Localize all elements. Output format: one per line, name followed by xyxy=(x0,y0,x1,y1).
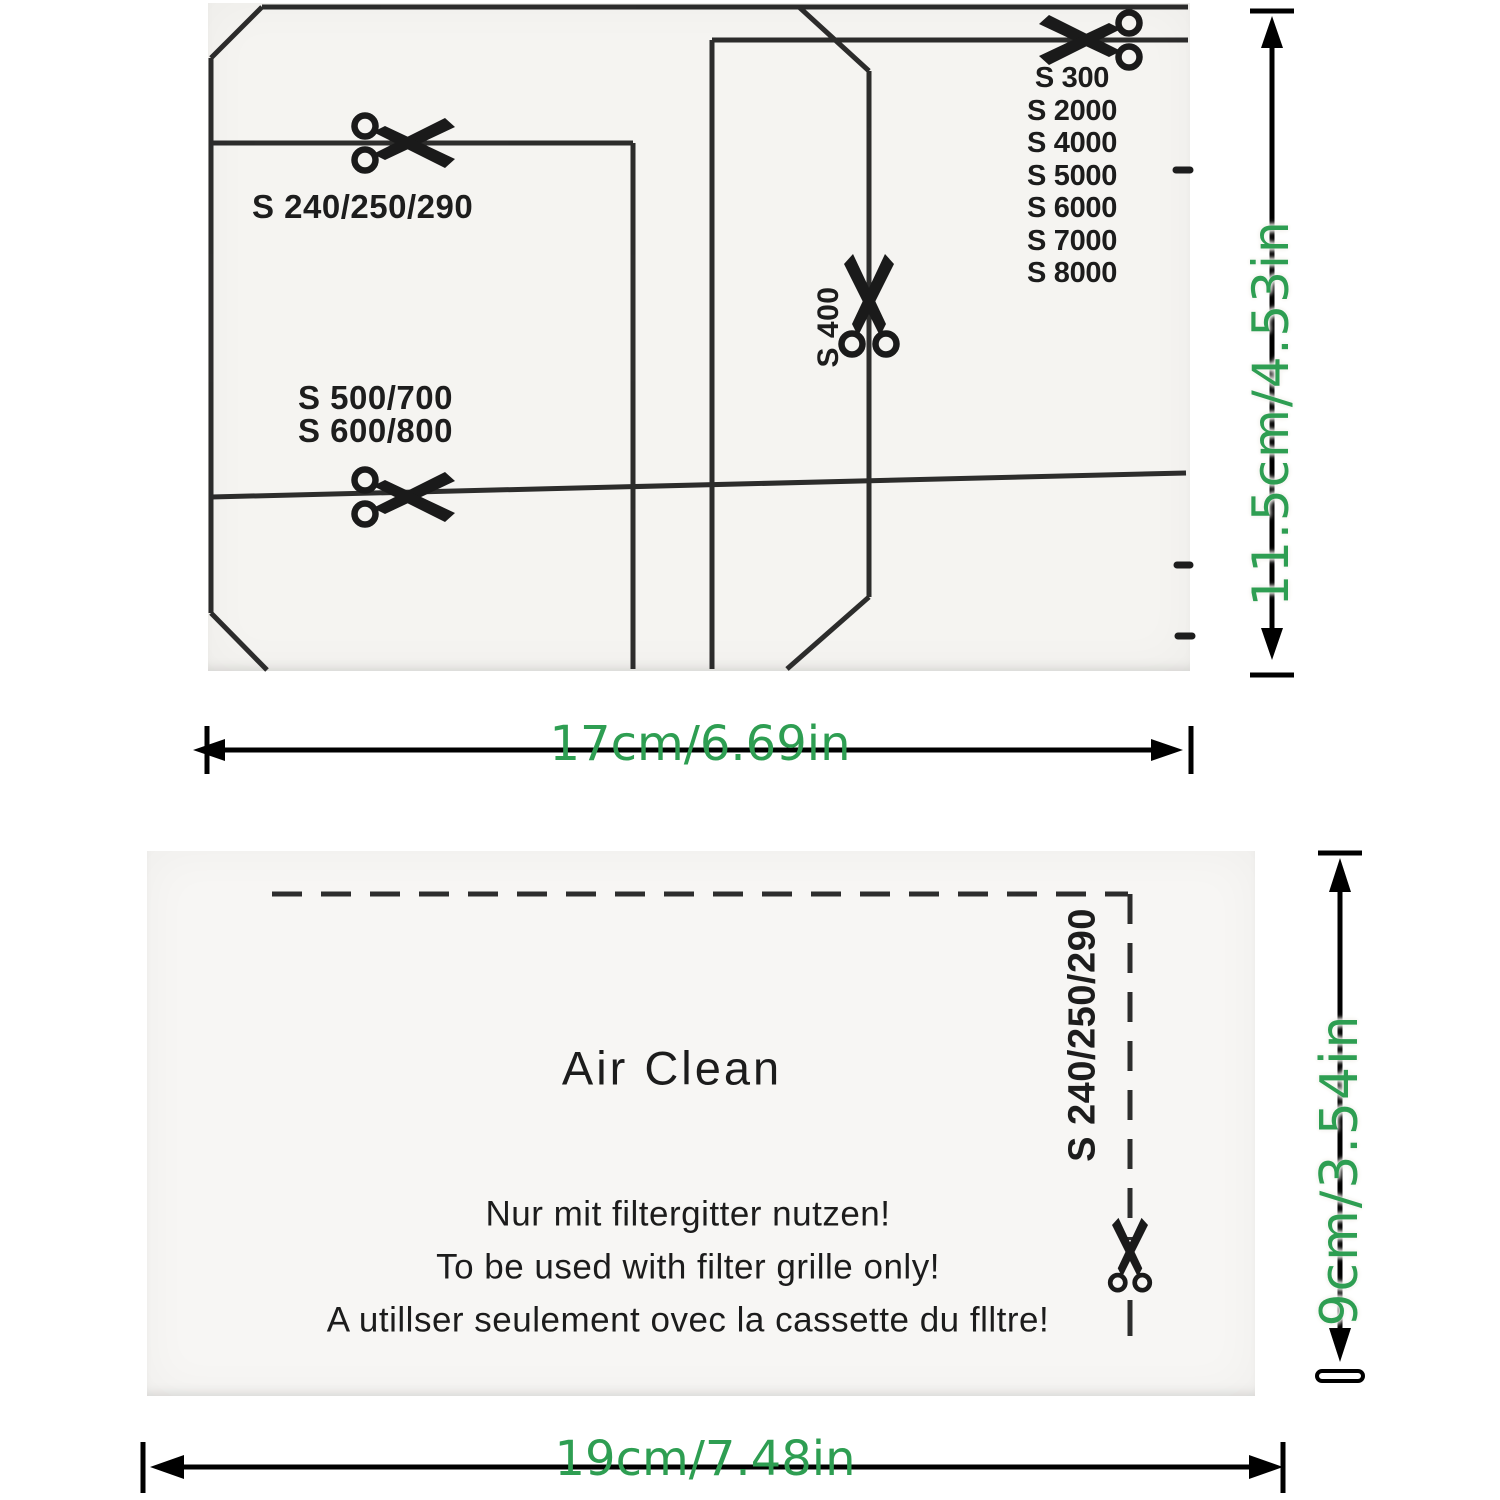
cut-size-label: S 600/800 xyxy=(298,412,453,450)
model-number: S 8000 xyxy=(1008,257,1136,290)
air-clean-title: Air Clean xyxy=(562,1041,782,1096)
width-dimension-text: 17cm/6.69in xyxy=(549,716,850,772)
model-number: S 6000 xyxy=(1008,192,1136,225)
cut-size-label: S 240/250/290 xyxy=(252,188,473,226)
usage-notes: Nur mit filtergitter nutzen! To be used … xyxy=(218,1188,1158,1347)
usage-note-english: To be used with filter grille only! xyxy=(218,1241,1158,1294)
cut-size-label-vertical: S 400 xyxy=(812,287,846,368)
cut-size-label-vertical: S 240/250/290 xyxy=(1062,908,1105,1162)
height-dimension-text: 11.5cm/4.53in xyxy=(1242,219,1300,606)
model-number: S 300 xyxy=(1008,62,1136,95)
model-number: S 2000 xyxy=(1008,95,1136,128)
height-dimension-text: 9cm/3.54in xyxy=(1310,1013,1370,1326)
usage-note-german: Nur mit filtergitter nutzen! xyxy=(218,1188,1158,1241)
edge-registration-marks xyxy=(1176,170,1192,636)
model-number: S 7000 xyxy=(1008,225,1136,258)
usage-note-french: A utillser seulement ovec la cassette du… xyxy=(218,1294,1158,1347)
width-dimension-text: 19cm/7.48in xyxy=(554,1431,855,1487)
model-number: S 5000 xyxy=(1008,160,1136,193)
scissors-icon xyxy=(355,470,456,525)
model-number-list: S 300 S 2000 S 4000 S 5000 S 6000 S 7000… xyxy=(1008,62,1136,290)
filter-dimension-diagram: S 240/250/290 S 500/700 S 600/800 S 400 … xyxy=(0,0,1500,1500)
model-number: S 4000 xyxy=(1008,127,1136,160)
